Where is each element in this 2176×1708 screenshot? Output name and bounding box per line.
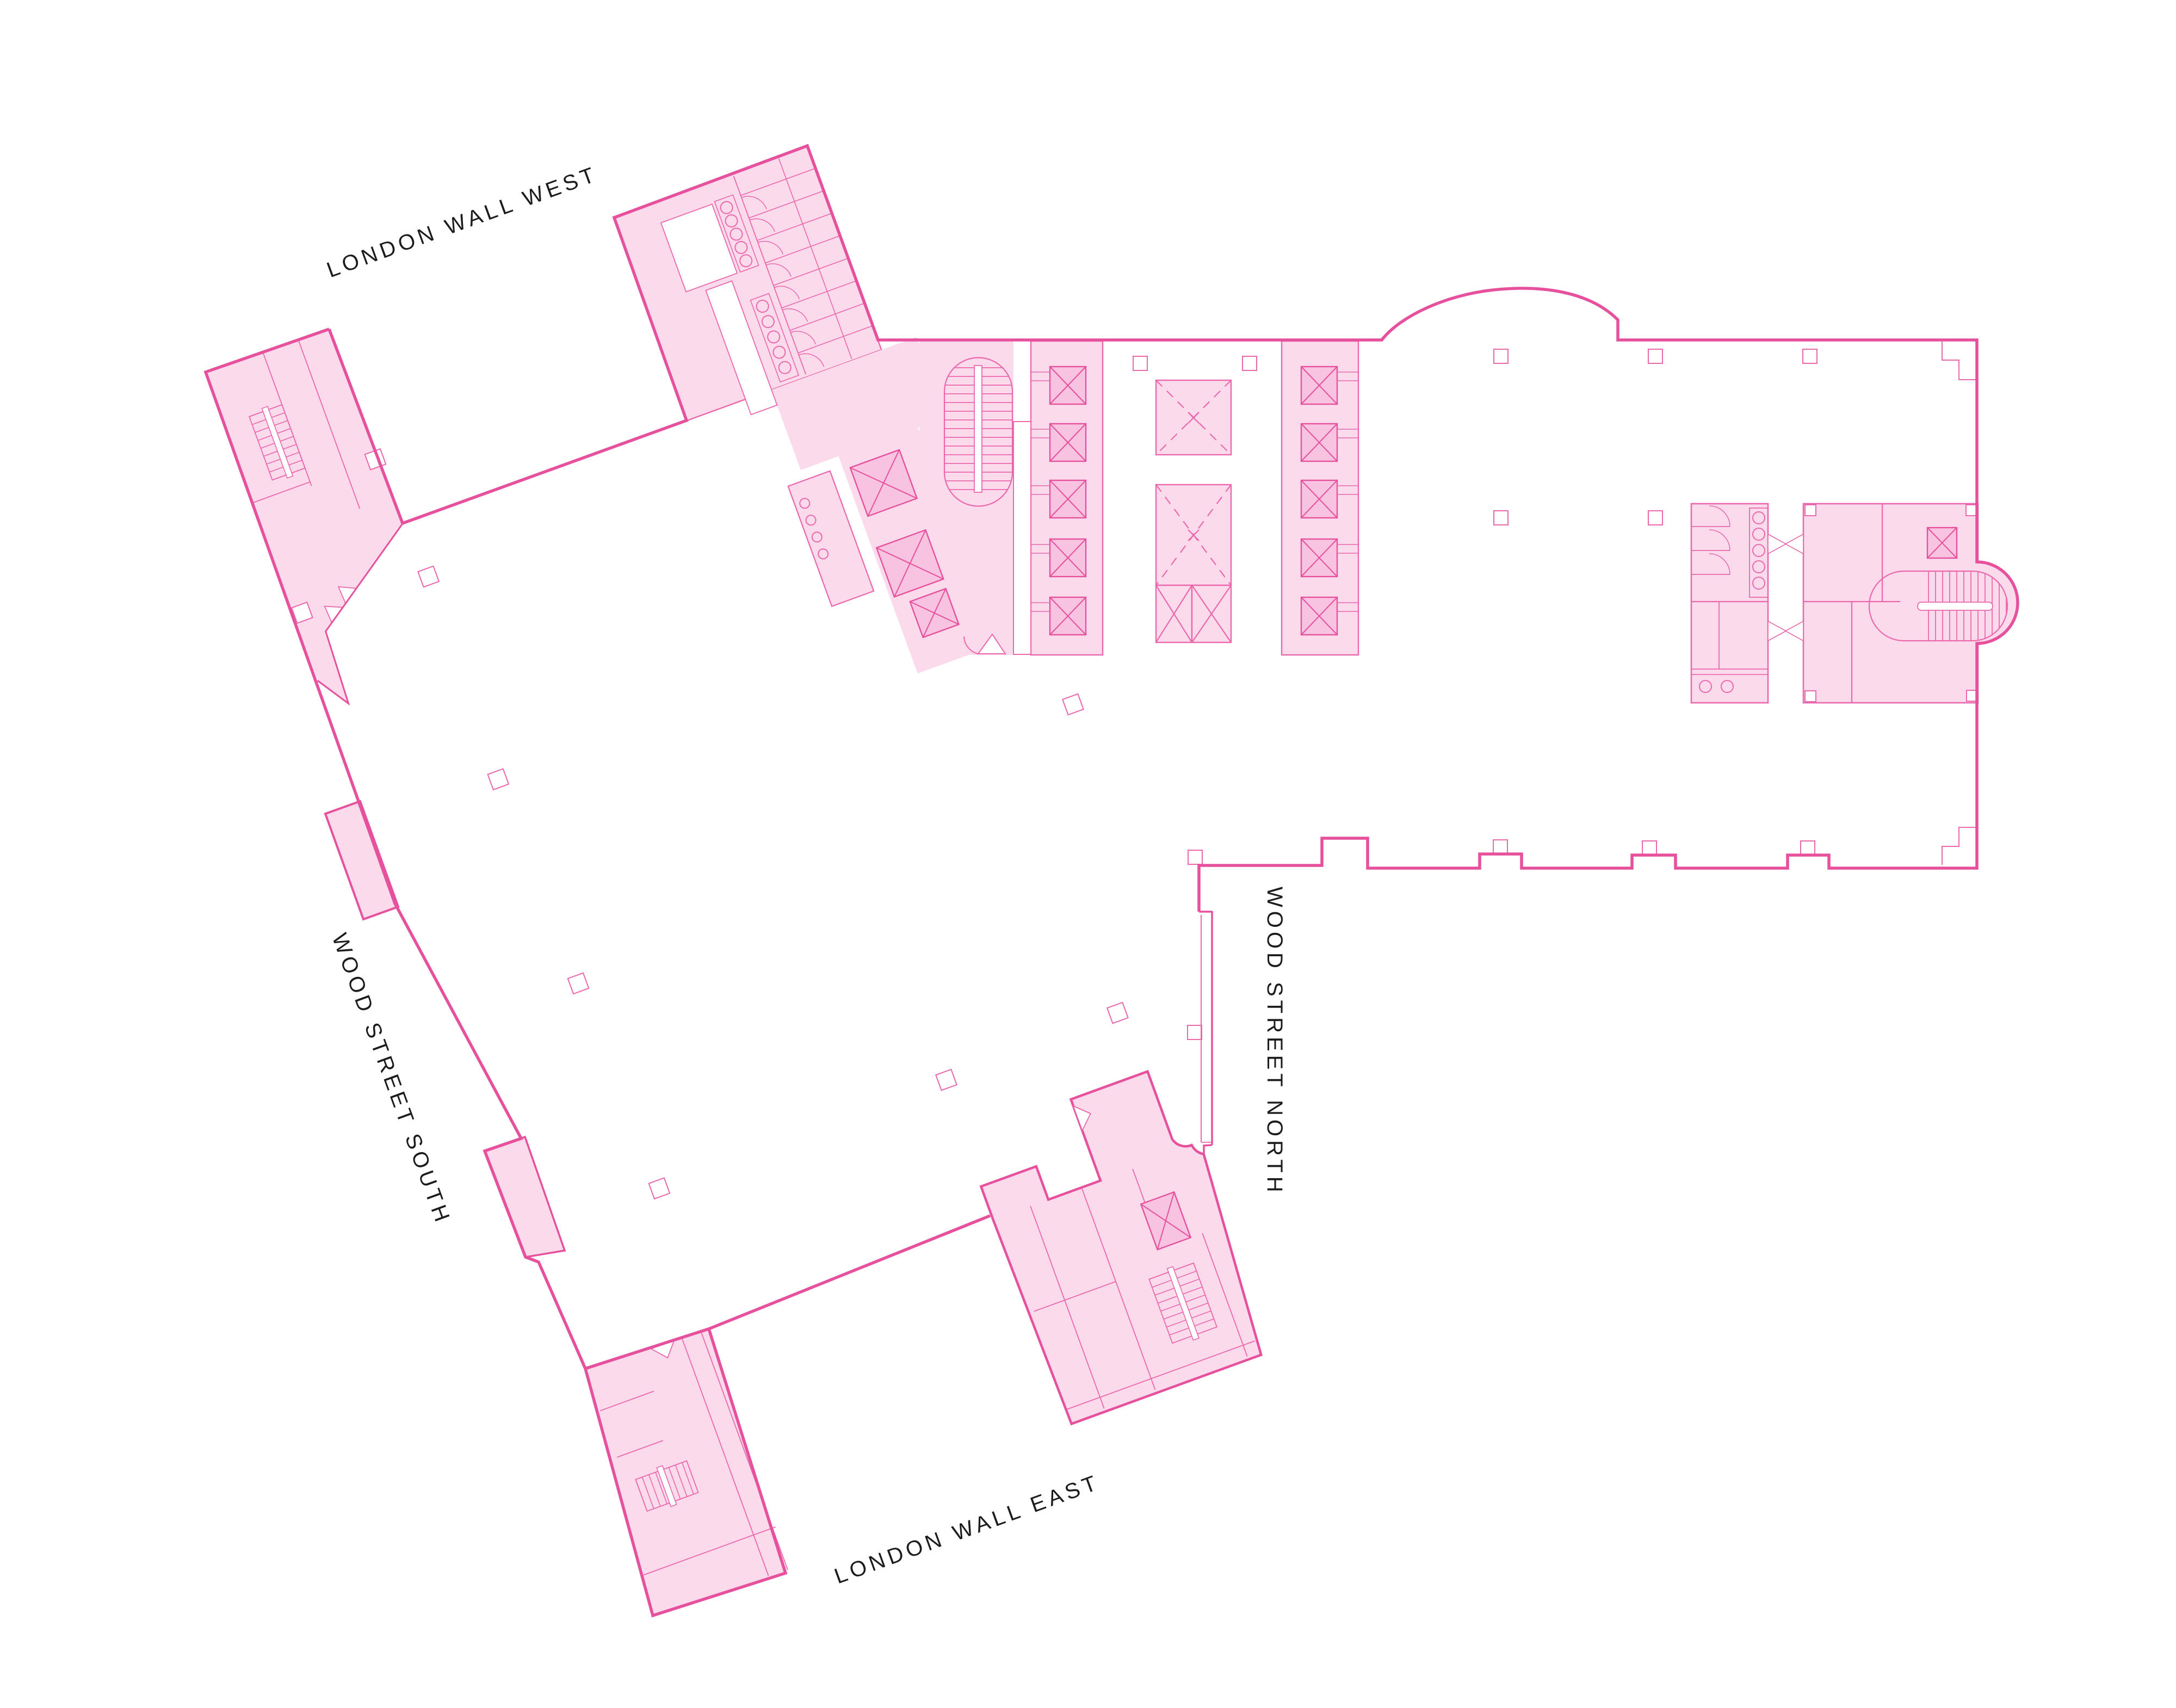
svg-text:WOOD STREET NORTH: WOOD STREET NORTH	[1263, 887, 1287, 1196]
